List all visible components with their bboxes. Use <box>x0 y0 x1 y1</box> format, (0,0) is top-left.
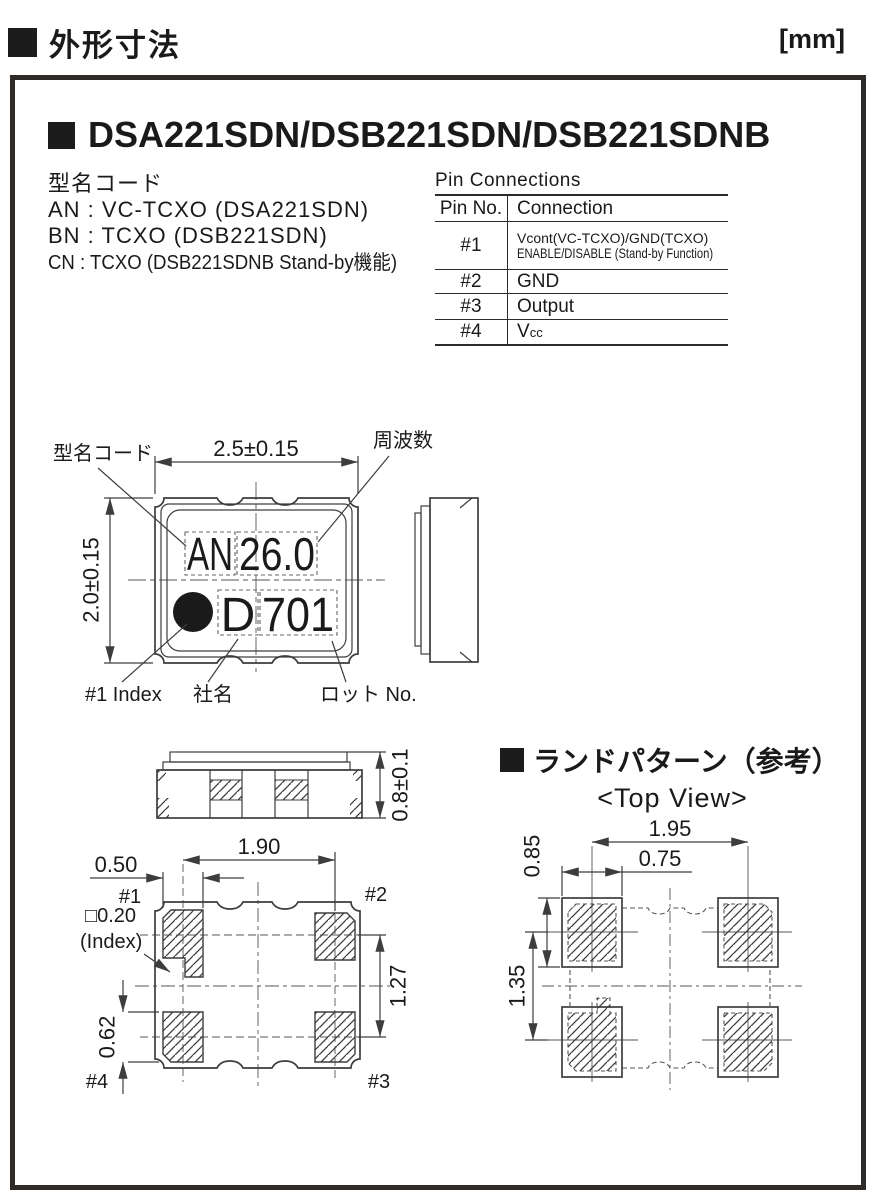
frequency-callout-label: 周波数 <box>373 429 433 452</box>
package-right-side-view <box>415 498 478 662</box>
dim-package-width: 2.5±0.15 <box>155 436 358 494</box>
section-header-title: 外形寸法 <box>49 20 181 65</box>
marking-frequency: 26.0 <box>239 528 315 580</box>
model-code-heading: 型名コード <box>48 171 423 197</box>
model-code-line-cn: CN : TCXO (DSB221SDNB Stand-by機能) <box>48 250 397 276</box>
pin-number: #4 <box>435 321 507 343</box>
dim-package-width-value: 2.5±0.15 <box>213 436 298 461</box>
pin-connection: Vcc <box>507 320 728 344</box>
section-header-square-icon <box>8 28 37 57</box>
dim-package-height-value: 2.0±0.15 <box>79 537 104 622</box>
dim-package-height: 2.0±0.15 <box>79 498 154 663</box>
dim-pad-height-value: 0.62 <box>95 1016 120 1059</box>
pin-connections-block: Pin Connections Pin No. Connection #1 Vc… <box>435 170 728 346</box>
land-pattern-square-icon <box>500 748 524 772</box>
package-top-view-drawing: 型名コード 周波数 2.5±0.15 2.0±0.15 AN 26.0 D 70… <box>40 420 520 720</box>
pin-connection: Output <box>507 294 728 319</box>
index-callout-label: #1 Index <box>85 684 162 706</box>
table-row: #4 Vcc <box>435 320 728 344</box>
index-size-label: □0.20 <box>85 905 136 927</box>
pin-number: #3 <box>435 296 507 318</box>
pin-no-column-header: Pin No. <box>435 198 507 220</box>
model-code-line-bn: BN : TCXO (DSB221SDN) <box>48 223 423 249</box>
pin-number: #2 <box>435 271 507 293</box>
model-code-block: 型名コード AN : VC-TCXO (DSA221SDN) BN : TCXO… <box>48 171 423 276</box>
marking-model-code: AN <box>187 528 233 580</box>
land-pattern-heading: ランドパターン（参考） <box>500 740 845 780</box>
index-text-label: (Index) <box>80 931 142 953</box>
dim-land-pitch-y: 1.35 <box>505 932 549 1040</box>
pin-connections-title: Pin Connections <box>435 170 728 192</box>
table-row: #2 GND <box>435 270 728 294</box>
dim-land-pitch-x-value: 1.95 <box>649 816 692 841</box>
pin3-label: #3 <box>368 1071 390 1093</box>
marking-lot-number: 701 <box>262 589 334 642</box>
pin1-index-dot <box>173 592 213 632</box>
pad-2 <box>315 913 355 960</box>
lot-callout-label: ロット No. <box>320 684 417 706</box>
marking-company-code: D <box>221 589 256 642</box>
pin-connections-table: Pin No. Connection #1 Vcont(VC-TCXO)/GND… <box>435 194 728 346</box>
vcc-subscript: cc <box>530 325 543 340</box>
package-side-view-drawing: 0.8±0.1 <box>120 738 440 830</box>
side-view-body <box>157 752 362 818</box>
dim-land-height-value: 0.85 <box>520 835 545 878</box>
land-pattern-heading-block: ランドパターン（参考） <Top View> <box>500 740 845 814</box>
title-square-icon <box>48 122 75 149</box>
model-code-callout-label: 型名コード <box>53 442 153 465</box>
connection-column-header: Connection <box>507 196 728 221</box>
pin4-label: #4 <box>86 1071 108 1093</box>
section-header: 外形寸法 <box>8 20 181 65</box>
company-callout-label: 社名 <box>193 683 233 706</box>
table-row: #3 Output <box>435 294 728 320</box>
unit-label: [mm] <box>779 24 845 55</box>
pin1-connection-line1: Vcont(VC-TCXO)/GND(TCXO) <box>517 231 762 246</box>
land-pattern-title: ランドパターン（参考） <box>533 740 840 780</box>
dim-land-height: 0.85 <box>520 835 561 967</box>
land-pattern-drawing: 1.95 0.75 0.85 1.35 <box>490 810 850 1100</box>
part-number-text: DSA221SDN/DSB221SDN/DSB221SDNB <box>88 114 770 156</box>
pad-3 <box>315 1012 355 1062</box>
side-view-corner-hatch <box>157 798 169 818</box>
part-number-title: DSA221SDN/DSB221SDN/DSB221SDNB <box>48 114 770 156</box>
dim-land-width: 0.75 <box>562 846 692 896</box>
dim-pad-pitch-y: 1.27 <box>358 935 411 1037</box>
dim-pad-pitch-y-value: 1.27 <box>386 965 411 1008</box>
side-view-pad-hatch <box>210 780 242 800</box>
side-view-corner-hatch <box>157 770 166 781</box>
dim-pad-pitch-x-value: 1.90 <box>238 834 281 859</box>
pin-table-header-row: Pin No. Connection <box>435 196 728 222</box>
side-view-corner-hatch <box>353 770 362 781</box>
dim-pad-width-value: 0.50 <box>95 852 138 877</box>
side-view-pad-hatch <box>275 780 308 800</box>
pad-dashed-top-left <box>568 904 616 961</box>
model-code-line-an: AN : VC-TCXO (DSA221SDN) <box>48 197 423 223</box>
pad-4 <box>163 1012 203 1062</box>
pin1-label: #1 <box>119 886 141 908</box>
dim-land-width-value: 0.75 <box>639 846 682 871</box>
dim-land-pitch-y-value: 1.35 <box>505 965 530 1008</box>
dim-pad-pitch-x: 1.90 <box>183 834 335 911</box>
pin-connection: Vcont(VC-TCXO)/GND(TCXO) ENABLE/DISABLE … <box>507 222 762 269</box>
dim-thickness-value: 0.8±0.1 <box>388 748 413 821</box>
pad-dashed-top-right <box>724 904 772 961</box>
pad-dashed-bottom-right <box>724 1013 772 1071</box>
pin1-connection-line2: ENABLE/DISABLE (Stand-by Function) <box>517 246 713 261</box>
pin-number: #1 <box>435 235 507 257</box>
side-view-corner-hatch <box>350 798 362 818</box>
package-bottom-view-drawing: 1.90 0.50 0.62 1.27 □0.20 (Index) #1 #2 … <box>40 830 460 1120</box>
datasheet-page: { "colors": {"ink": "#1a1a1a", "line": "… <box>0 0 879 1200</box>
dim-land-pitch-x: 1.95 <box>592 816 748 842</box>
table-row: #1 Vcont(VC-TCXO)/GND(TCXO) ENABLE/DISAB… <box>435 222 728 270</box>
index-callout: □0.20 (Index) <box>80 905 170 972</box>
pin2-label: #2 <box>365 884 387 906</box>
pin-connection: GND <box>507 270 728 293</box>
